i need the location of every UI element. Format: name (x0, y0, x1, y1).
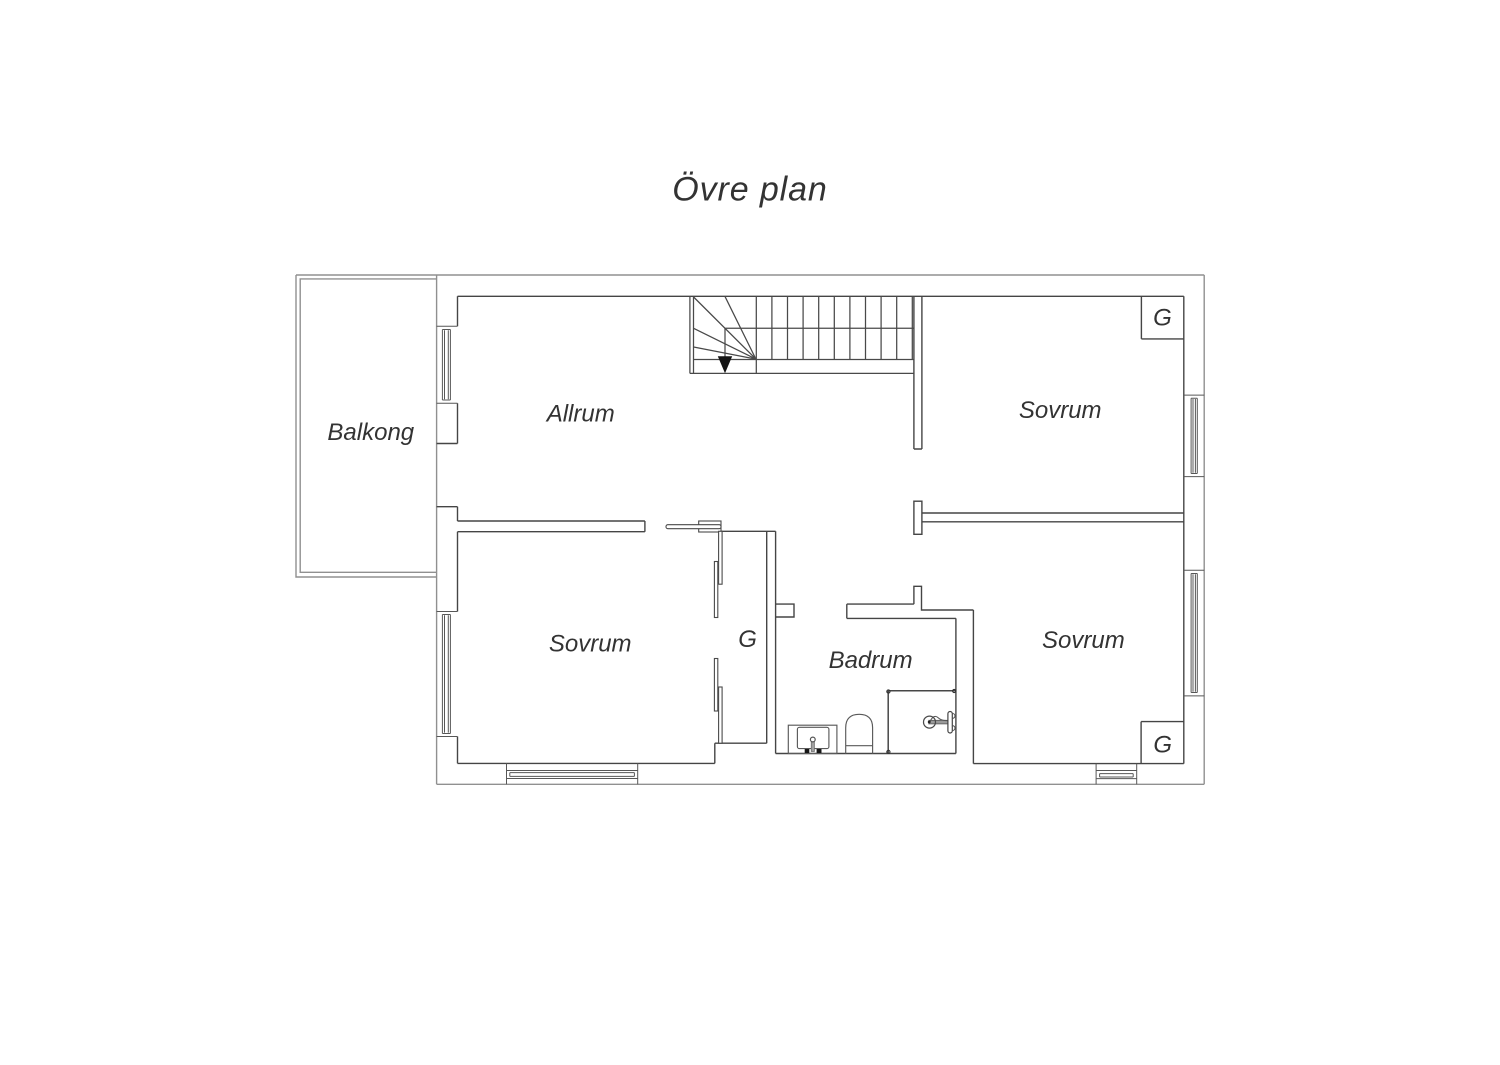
svg-text:Sovrum: Sovrum (549, 630, 632, 657)
svg-text:Sovrum: Sovrum (1019, 397, 1102, 424)
svg-text:Balkong: Balkong (327, 419, 414, 446)
svg-text:G: G (1153, 304, 1172, 331)
svg-text:Övre plan: Övre plan (672, 170, 828, 208)
svg-text:Allrum: Allrum (545, 400, 615, 427)
svg-text:Sovrum: Sovrum (1042, 627, 1125, 654)
svg-text:Badrum: Badrum (829, 647, 913, 674)
svg-text:G: G (738, 626, 757, 653)
svg-text:G: G (1153, 732, 1172, 759)
